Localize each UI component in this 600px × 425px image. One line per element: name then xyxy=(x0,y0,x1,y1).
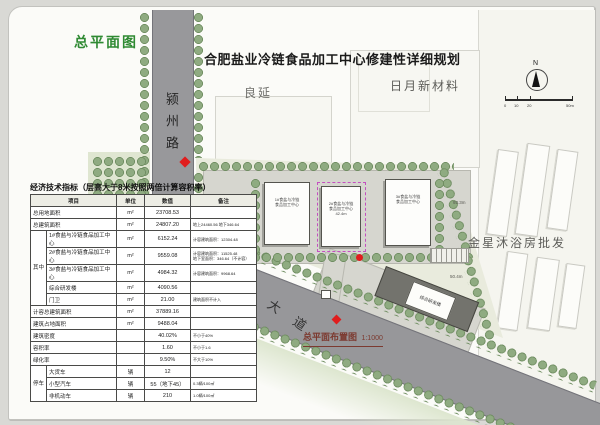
table-row: 建筑占地面积 m² 9488.04 xyxy=(31,318,257,330)
col-value: 数值 xyxy=(145,195,191,207)
row-b1-unit: m² xyxy=(117,231,145,248)
building-gatehouse xyxy=(321,290,331,299)
drawing-caption: 总平面布置图 1:1000 xyxy=(303,327,383,347)
row-capgfa-note xyxy=(191,306,257,318)
row-capgfa-name: 计容总建筑面积 xyxy=(31,306,117,318)
row-density-unit xyxy=(117,330,145,342)
table-header-row: 项目 单位 数值 备注 xyxy=(31,195,257,207)
dimension-southeast: 50.4m xyxy=(450,274,463,279)
row-b3-value: 4984.32 xyxy=(145,265,191,282)
row-gate-unit: m² xyxy=(117,294,145,306)
row-far-value: 1.60 xyxy=(145,342,191,354)
plan-label: 总平面图 xyxy=(74,32,138,52)
row-green-name: 绿化率 xyxy=(31,354,117,366)
building-1-processing-center: 1#食盐与冷链 食品加工中心 xyxy=(264,182,310,245)
row-research-unit: m² xyxy=(117,282,145,294)
row-gfa-value: 24807.20 xyxy=(145,219,191,231)
row-bike-name: 非机动车 xyxy=(47,390,117,402)
table-row: 总建筑面积 m² 24807.20 地上24460.56 地下346.64 xyxy=(31,219,257,231)
neighbor-label-riyue: 日月新材料 xyxy=(390,77,460,94)
tree-row-road-west-right xyxy=(193,12,205,158)
scale-tick: 20 xyxy=(527,103,531,108)
tree-row-inner-east xyxy=(434,178,444,256)
table-row: 小型汽车 辆 55（地下45） 0.3辆/100㎡ xyxy=(31,378,257,390)
group-subtotal: 其中 xyxy=(31,231,47,306)
row-land-unit: m² xyxy=(117,207,145,219)
indicators-table: 项目 单位 数值 备注 总用地面积 m² 23708.53 总建筑面积 m² 2… xyxy=(30,194,257,402)
row-gfa-name: 总建筑面积 xyxy=(31,219,117,231)
col-unit: 单位 xyxy=(117,195,145,207)
row-land-name: 总用地面积 xyxy=(31,207,117,219)
neighbor-label-liangyan: 良延 xyxy=(244,84,272,101)
table-row: 绿化率 9.50% 不大于10% xyxy=(31,354,257,366)
row-gate-value: 21.00 xyxy=(145,294,191,306)
row-green-note: 不大于10% xyxy=(191,354,257,366)
row-capgfa-unit: m² xyxy=(117,306,145,318)
caption-scale: 1:1000 xyxy=(361,335,382,342)
row-footprint-name: 建筑占地面积 xyxy=(31,318,117,330)
parking-stalls xyxy=(430,248,469,263)
scale-bar xyxy=(505,99,573,101)
indicators-title: 经济技术指标（层高大于8米按照两倍计算容积率） xyxy=(30,182,210,193)
row-capgfa-value: 37889.16 xyxy=(145,306,191,318)
scale-tick: 50m xyxy=(566,103,574,108)
table-row: 建筑密度 40.02% 不小于40% xyxy=(31,330,257,342)
row-b3-note: 计容建筑面积：9968.64 xyxy=(191,265,257,282)
row-research-value: 4090.56 xyxy=(145,282,191,294)
row-b2-note: 计容建筑面积：11525.48 地下室面积：346.64（不计容） xyxy=(191,248,257,265)
table-row: 容积率 1.60 不小于1.6 xyxy=(31,342,257,354)
row-b2-unit: m² xyxy=(117,248,145,265)
row-b1-name: 1#食盐与冷链食品加工中心 xyxy=(47,231,117,248)
col-item: 项目 xyxy=(31,195,117,207)
table-row: 计容总建筑面积 m² 37889.16 xyxy=(31,306,257,318)
row-bike-unit: 辆 xyxy=(117,390,145,402)
north-arrow-pointer xyxy=(532,71,540,87)
row-green-value: 9.50% xyxy=(145,354,191,366)
row-b1-value: 6152.24 xyxy=(145,231,191,248)
row-footprint-unit: m² xyxy=(117,318,145,330)
row-gfa-unit: m² xyxy=(117,219,145,231)
table-row: 非机动车 辆 210 1.0辆/100㎡ xyxy=(31,390,257,402)
row-far-unit xyxy=(117,342,145,354)
col-note: 备注 xyxy=(191,195,257,207)
row-research-name: 综合研发楼 xyxy=(47,282,117,294)
site-plan-sheet: 1#食盐与冷链 食品加工中心 2#食盐与冷链 食品加工中心 42.4m 3#食盐… xyxy=(0,0,600,425)
page-title: 合肥盐业冷链食品加工中心修建性详细规划 xyxy=(204,49,461,68)
row-car-name: 小型汽车 xyxy=(47,378,117,390)
north-label: N xyxy=(533,60,538,67)
row-density-name: 建筑密度 xyxy=(31,330,117,342)
caption-text: 总平面布置图 xyxy=(303,332,357,342)
dimension-east: 93.3m xyxy=(453,200,466,205)
row-far-name: 容积率 xyxy=(31,342,117,354)
row-far-note: 不小于1.6 xyxy=(191,342,257,354)
row-b2-value: 9559.08 xyxy=(145,248,191,265)
building-2-processing-center: 2#食盐与冷链 食品加工中心 42.4m xyxy=(321,186,361,247)
table-row: 门卫 m² 21.00 建筑面积不计入 xyxy=(31,294,257,306)
row-green-unit xyxy=(117,354,145,366)
row-land-value: 23708.53 xyxy=(145,207,191,219)
entrance-marker-main xyxy=(356,254,363,261)
table-row: 3#食盐与冷链食品加工中心 m² 4984.32 计容建筑面积：9968.64 xyxy=(31,265,257,282)
row-truck-value: 12 xyxy=(145,366,191,378)
row-b3-name: 3#食盐与冷链食品加工中心 xyxy=(47,265,117,282)
row-truck-unit: 辆 xyxy=(117,366,145,378)
row-density-note: 不小于40% xyxy=(191,330,257,342)
row-gfa-note: 地上24460.56 地下346.64 xyxy=(191,219,257,231)
tree-row-site-north xyxy=(198,161,454,173)
table-row: 综合研发楼 m² 4090.56 xyxy=(31,282,257,294)
building-3-processing-center: 3#食盐与冷链 食品加工中心 xyxy=(385,179,431,246)
row-car-note: 0.3辆/100㎡ xyxy=(191,378,257,390)
group-parking: 停车 xyxy=(31,366,47,402)
table-row: 总用地面积 m² 23708.53 xyxy=(31,207,257,219)
row-b3-unit: m² xyxy=(117,265,145,282)
row-bike-value: 210 xyxy=(145,390,191,402)
table-row: 其中 1#食盐与冷链食品加工中心 m² 6152.24 计容建筑面积：12304… xyxy=(31,231,257,248)
row-b2-name: 2#食盐与冷链食品加工中心 xyxy=(47,248,117,265)
row-footprint-note xyxy=(191,318,257,330)
table-row: 2#食盐与冷链食品加工中心 m² 9559.08 计容建筑面积：11525.48… xyxy=(31,248,257,265)
row-gate-name: 门卫 xyxy=(47,294,117,306)
row-gate-note: 建筑面积不计入 xyxy=(191,294,257,306)
row-research-note xyxy=(191,282,257,294)
row-car-unit: 辆 xyxy=(117,378,145,390)
row-b1-note: 计容建筑面积：12304.48 xyxy=(191,231,257,248)
row-truck-name: 大货车 xyxy=(47,366,117,378)
row-car-value: 55（地下45） xyxy=(145,378,191,390)
row-truck-note xyxy=(191,366,257,378)
row-land-note xyxy=(191,207,257,219)
scale-tick: 10 xyxy=(514,103,518,108)
parcel-liangyan xyxy=(215,96,332,168)
row-footprint-value: 9488.04 xyxy=(145,318,191,330)
row-density-value: 40.02% xyxy=(145,330,191,342)
neighbor-label-jinxing: 金星沐浴房批发 xyxy=(468,234,566,251)
scale-tick: 0 xyxy=(504,103,506,108)
row-bike-note: 1.0辆/100㎡ xyxy=(191,390,257,402)
table-row: 停车 大货车 辆 12 xyxy=(31,366,257,378)
road-label-yingzhou: 颍州路 xyxy=(162,92,181,158)
